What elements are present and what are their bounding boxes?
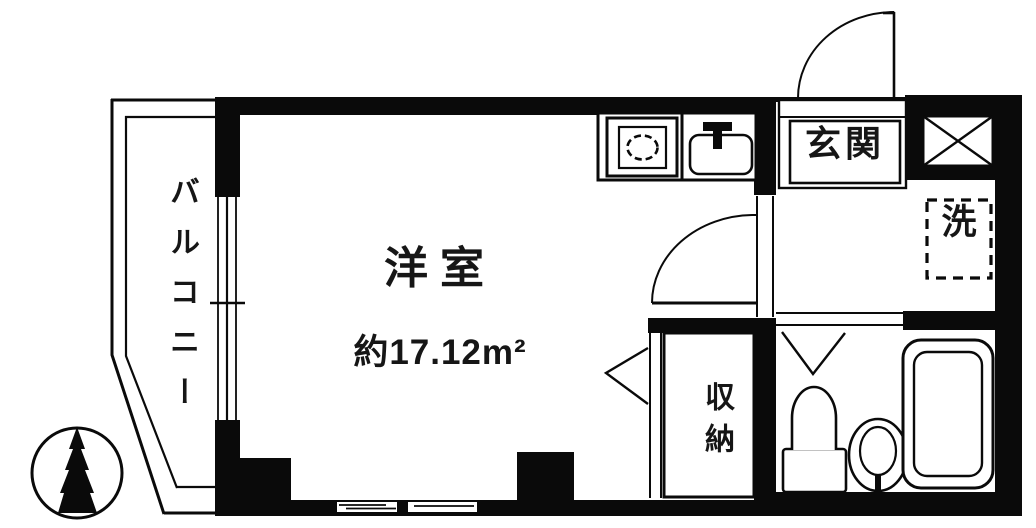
- entry-door-swing: [798, 12, 895, 100]
- closet-label: 収納: [685, 365, 731, 480]
- compass-icon: [32, 427, 122, 518]
- window-left: [210, 197, 245, 420]
- western-room-label: 洋室: [340, 247, 540, 291]
- washbasin-icon: [849, 419, 907, 492]
- kitchen-counter: [598, 113, 756, 180]
- bath-door-fold: [776, 313, 903, 374]
- closet-door-fold: [606, 348, 648, 404]
- entrance-label: 玄関: [789, 126, 901, 162]
- balcony-label: バルコニー: [150, 156, 196, 446]
- laundry-label: 洗: [927, 205, 991, 240]
- room-door-swing: [652, 196, 773, 317]
- toilet-icon: [783, 387, 846, 492]
- duct-x-icon: [923, 116, 993, 166]
- bathtub-icon: [903, 340, 993, 488]
- western-room-area-label: 約17.12m²: [318, 335, 562, 370]
- floorplan-page: バルコニー 洋室 約17.12m² 玄関 洗 収納: [0, 0, 1036, 528]
